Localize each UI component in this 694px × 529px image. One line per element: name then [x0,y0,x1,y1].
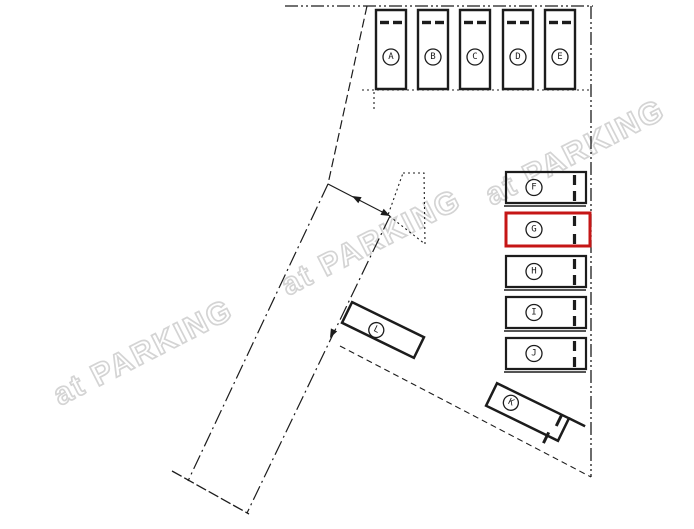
stall-label: D [515,52,520,62]
construction-lines [362,90,591,112]
stall-H: H [504,256,586,290]
stall-label: C [472,52,477,62]
stall-K: K [482,383,585,456]
stall-row-top: A B C D E [376,10,575,89]
stall-G-highlight-outline [506,213,590,246]
watermark-text: at PARKING [47,292,238,413]
stall-label: J [531,349,536,359]
stall-label: A [388,52,394,62]
watermark-text: at PARKING [275,182,466,303]
stall-G-selected: G [506,213,590,246]
stall-B: B [418,10,448,89]
dimension-arrowhead-left [352,196,362,203]
parking-plan-drawing: at PARKING at PARKING at PARKING A [0,0,694,529]
stall-I: I [504,297,586,331]
road-end-cap [172,471,249,514]
wheel-stop-tick [556,415,561,426]
stall-label: E [557,52,562,62]
stall-diagonal-group: L K [342,302,585,456]
stall-K-outline [486,383,569,441]
stall-column-right: F G H I [504,172,590,372]
stall-D: D [503,10,533,89]
stall-label: H [531,267,536,277]
parking-plan-image: at PARKING at PARKING at PARKING A [0,0,694,529]
stall-J: J [504,338,586,372]
road-edge-arrowhead [330,328,337,338]
stall-K-extension-line [569,418,585,426]
stall-label: F [531,183,536,193]
stall-label: G [531,225,536,235]
stall-label: I [531,308,536,318]
stall-L: L [342,302,424,358]
stall-label: B [430,52,435,62]
stall-C: C [460,10,490,89]
stall-A: A [376,10,406,89]
watermark-layer: at PARKING at PARKING at PARKING [47,92,670,413]
boundary-left-slant-line [328,6,367,184]
stall-E: E [545,10,575,89]
